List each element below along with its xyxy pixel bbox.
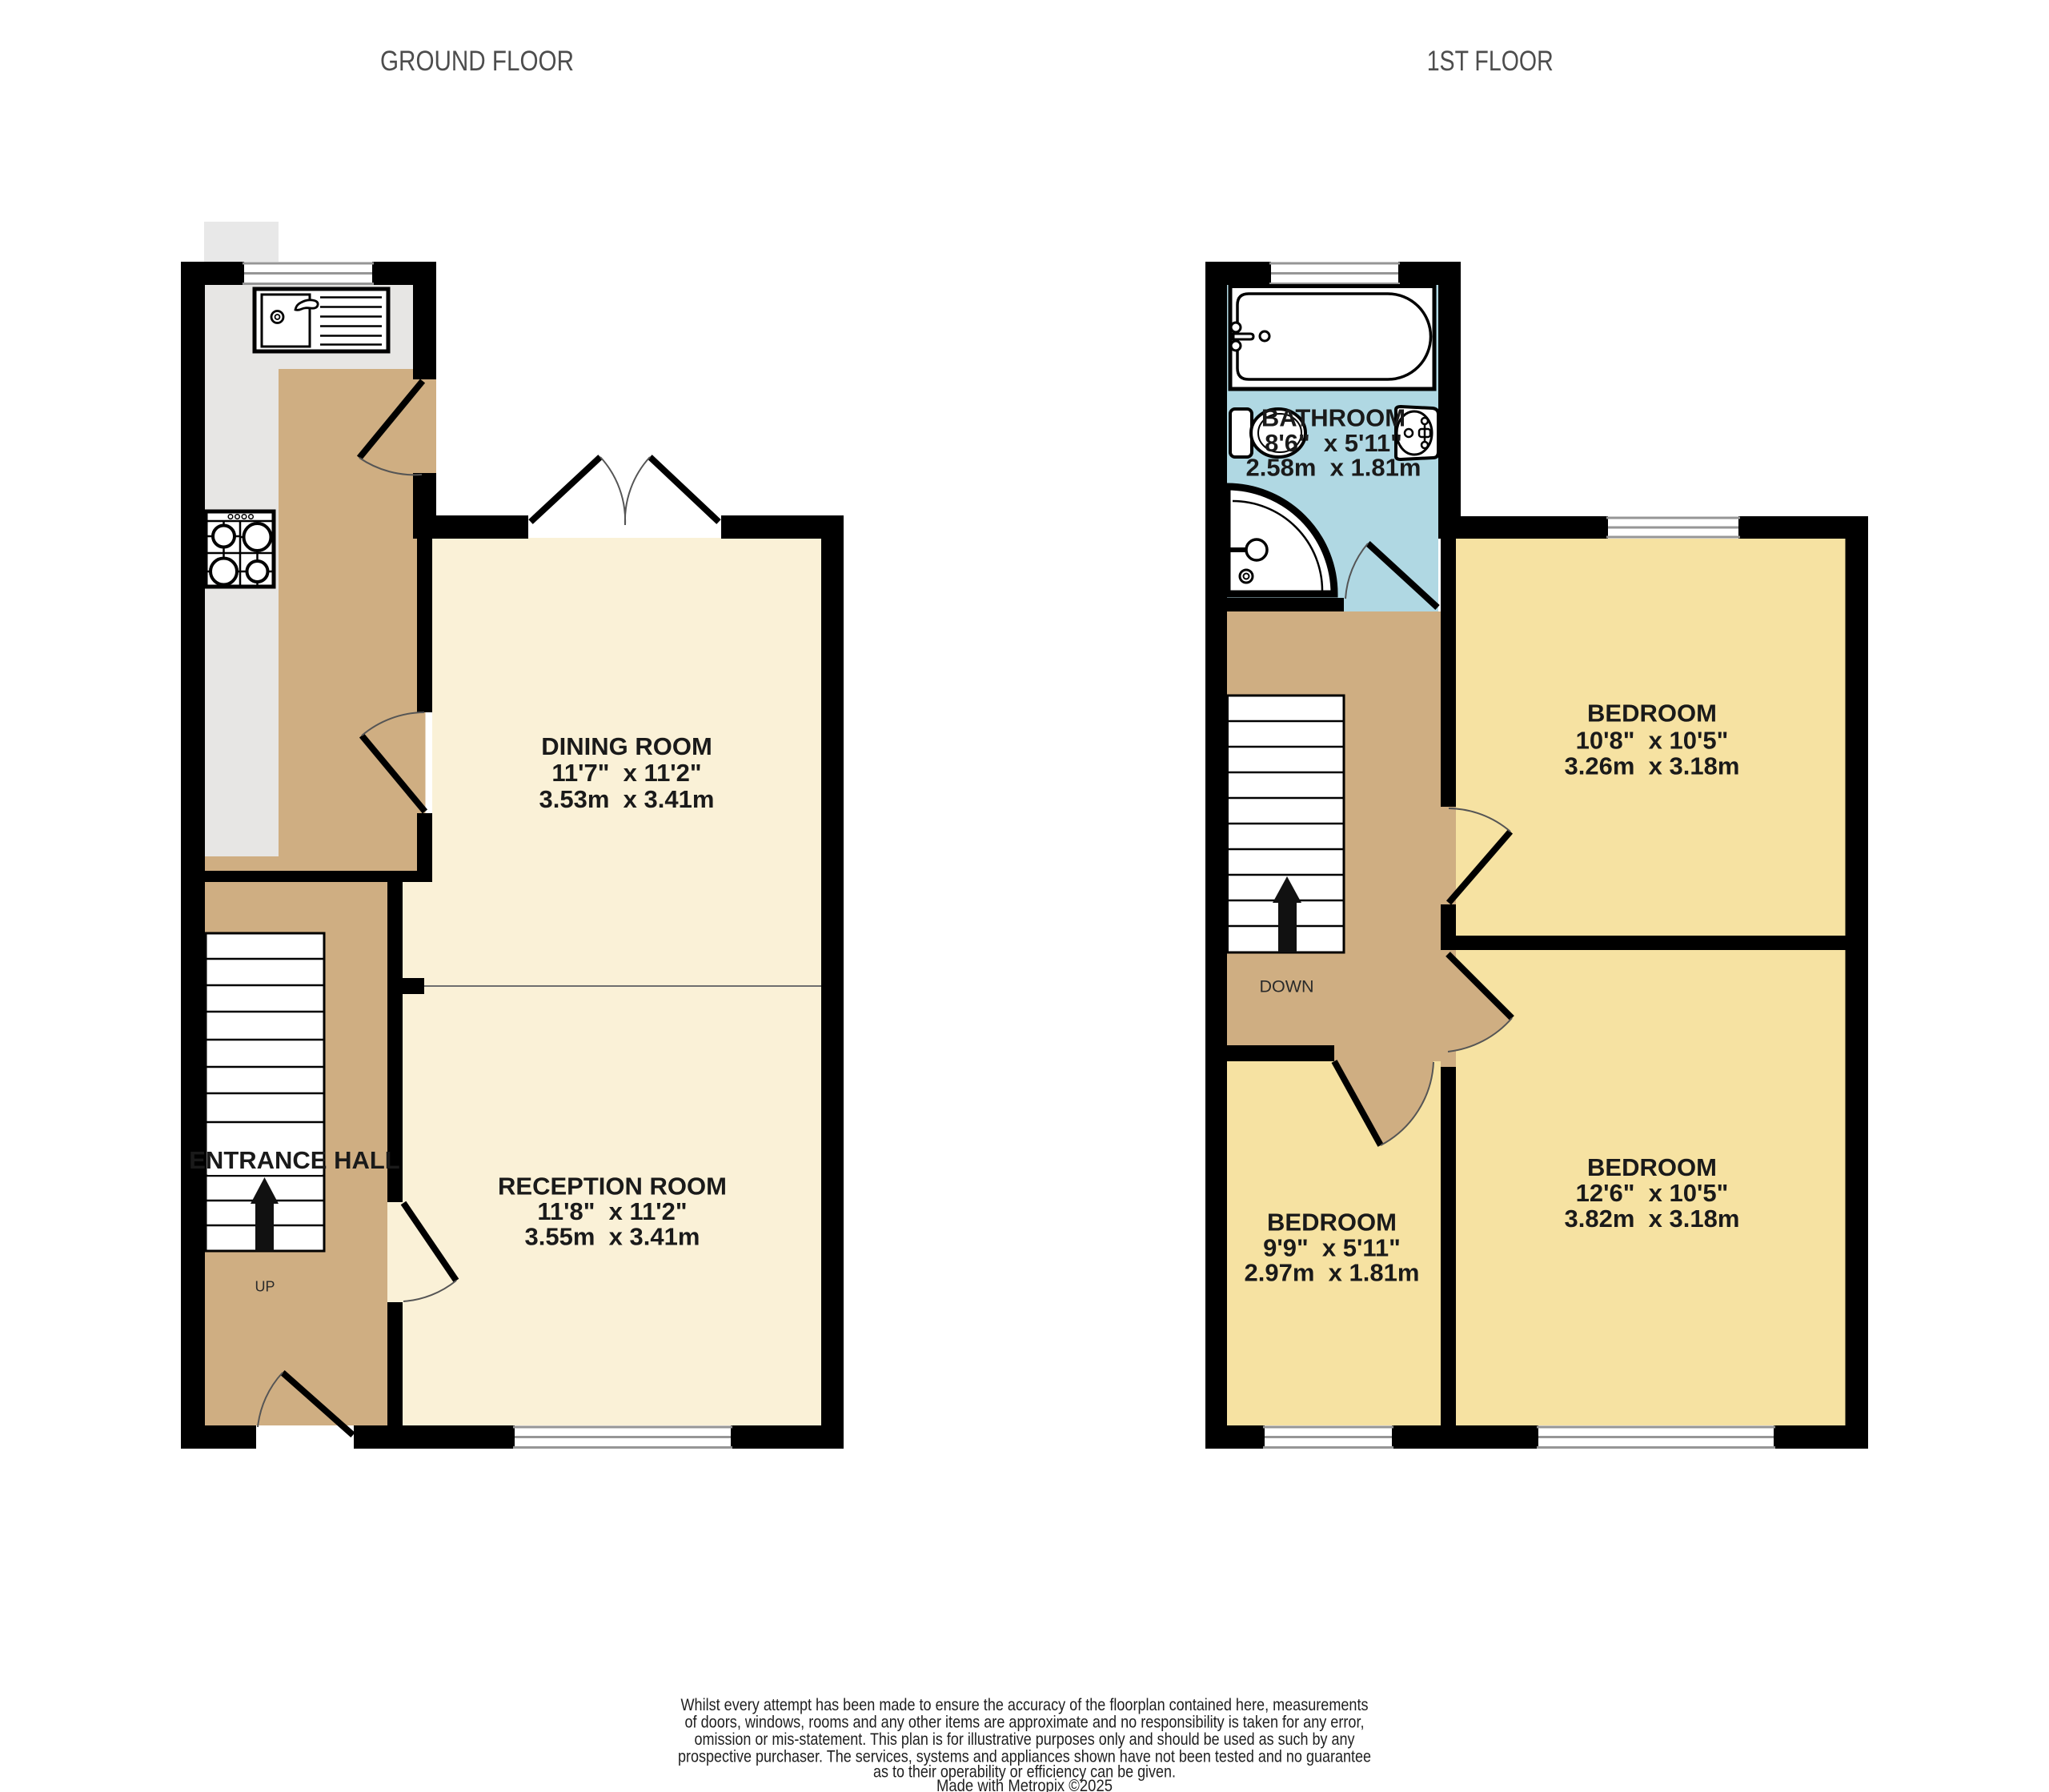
svg-text:3.26m x 3.18m: 3.26m x 3.18m	[1565, 752, 1740, 780]
svg-text:1ST FLOOR: 1ST FLOOR	[1427, 46, 1554, 77]
svg-text:3.53m x 3.41m: 3.53m x 3.41m	[539, 785, 715, 813]
svg-text:Made with Metropix ©2025: Made with Metropix ©2025	[936, 1777, 1113, 1792]
svg-text:11'8" x 11'2": 11'8" x 11'2"	[537, 1197, 687, 1225]
svg-text:GROUND FLOOR: GROUND FLOOR	[380, 46, 574, 77]
svg-text:omission or mis-statement. Thi: omission or mis-statement. This plan is …	[695, 1730, 1355, 1749]
svg-text:9'9" x 5'11": 9'9" x 5'11"	[1263, 1234, 1401, 1262]
svg-text:BEDROOM: BEDROOM	[1587, 700, 1717, 728]
svg-text:DINING ROOM: DINING ROOM	[541, 732, 712, 760]
svg-text:BEDROOM: BEDROOM	[1587, 1153, 1717, 1181]
svg-text:Whilst every attempt has been: Whilst every attempt has been made to en…	[681, 1696, 1369, 1714]
svg-text:ENTRANCE HALL: ENTRANCE HALL	[189, 1146, 400, 1174]
svg-text:UP: UP	[255, 1279, 275, 1295]
svg-text:10'8" x 10'5": 10'8" x 10'5"	[1576, 727, 1729, 755]
svg-text:3.55m x 3.41m: 3.55m x 3.41m	[525, 1223, 700, 1251]
svg-text:RECEPTION ROOM: RECEPTION ROOM	[498, 1173, 727, 1201]
svg-text:12'6" x 10'5": 12'6" x 10'5"	[1576, 1179, 1729, 1207]
svg-text:BATHROOM: BATHROOM	[1261, 404, 1405, 432]
svg-text:2.58m x 1.81m: 2.58m x 1.81m	[1246, 454, 1421, 482]
svg-text:11'7" x 11'2": 11'7" x 11'2"	[551, 759, 701, 787]
svg-text:2.97m x 1.81m: 2.97m x 1.81m	[1245, 1259, 1420, 1287]
svg-text:of doors, windows, rooms and a: of doors, windows, rooms and any other i…	[685, 1714, 1365, 1732]
svg-text:DOWN: DOWN	[1259, 977, 1313, 996]
svg-text:3.82m x 3.18m: 3.82m x 3.18m	[1565, 1205, 1740, 1233]
svg-text:BEDROOM: BEDROOM	[1267, 1209, 1397, 1237]
